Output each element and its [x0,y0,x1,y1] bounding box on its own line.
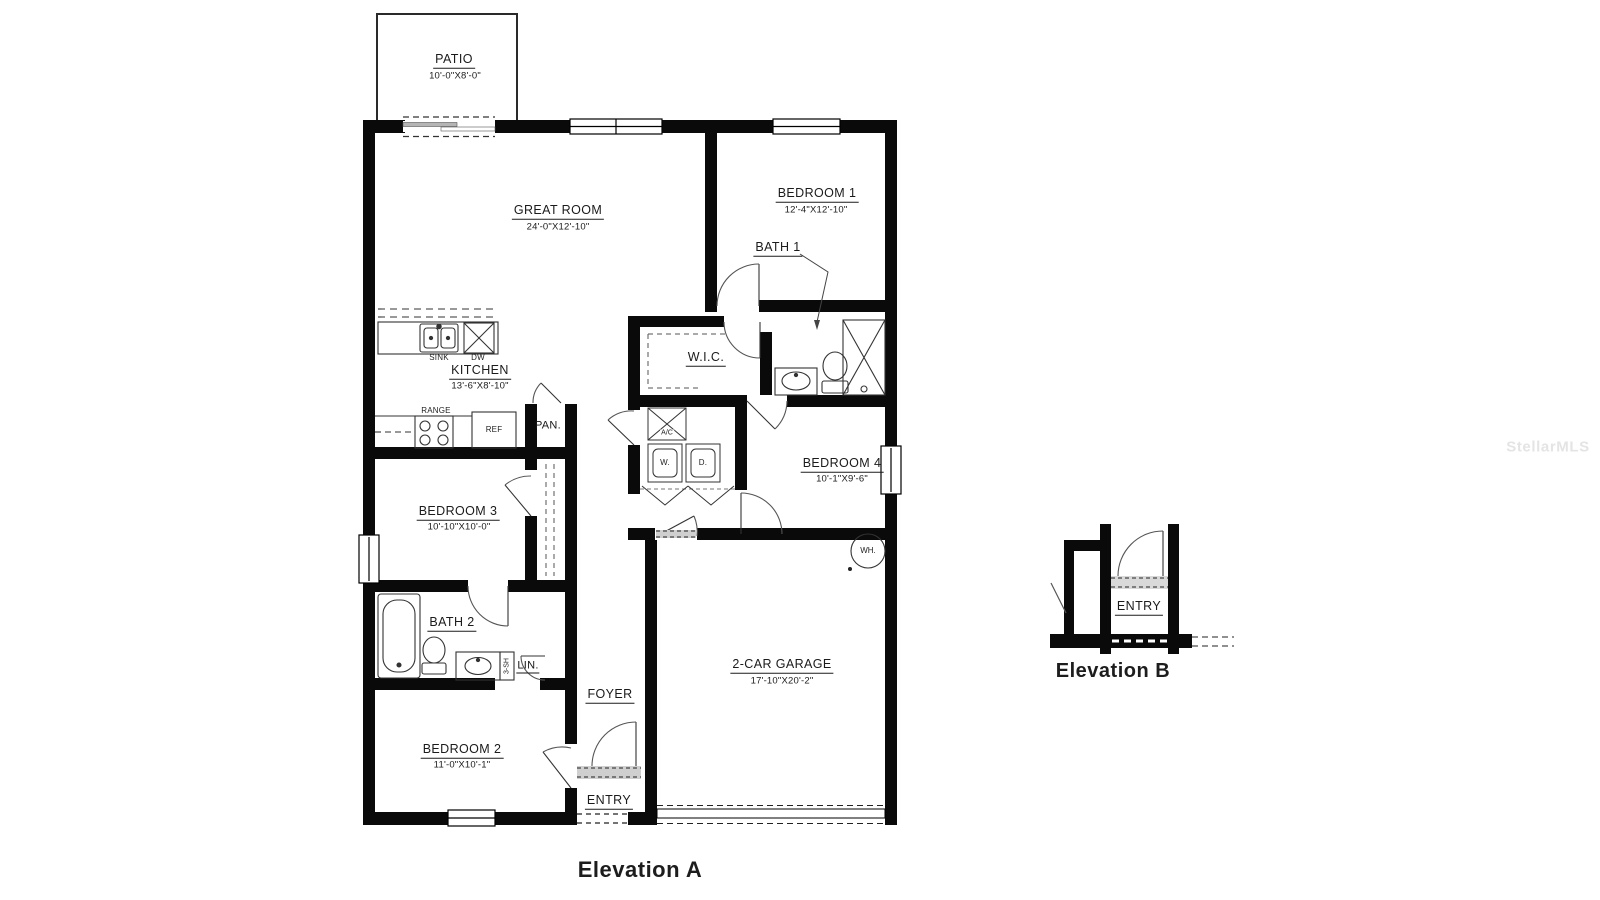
door-front-entry [577,722,641,779]
kitchen-sink-icon [420,324,458,352]
room-label-great-room: GREAT ROOM [512,204,604,217]
fixture-label-ac: A/C [660,430,674,437]
room-label-kitchen: KITCHEN [449,364,511,377]
stellar-mls-watermark: StellarMLS [1506,440,1590,455]
fixture-label-sink: SINK [429,354,448,362]
room-dims-great-room: 24'-0"X12'-10" [527,222,590,232]
room-label-bath1: BATH 1 [753,241,802,254]
elevation-b-title: Elevation B [1056,661,1170,681]
door-pantry [533,383,561,403]
door-bedroom2 [543,747,571,788]
range-icon [415,416,453,448]
bath2-fixtures [378,594,514,680]
elevation-b-detail [1050,524,1234,654]
room-dims-patio: 10'-0"X8'-0" [429,71,481,81]
room-dims-bedroom3: 10'-10"X10'-0" [428,522,491,532]
bath1-leader-line [800,254,828,330]
room-label-entry-b: ENTRY [1115,600,1163,613]
entry-threshold-dashes [577,814,628,823]
room-dims-bedroom2: 11'-0"X10'-1" [434,760,491,770]
door-ac-closet [608,411,634,445]
room-dims-garage: 17'-10"X20'-2" [751,676,814,686]
doors [468,264,787,788]
bifold-doors [640,486,735,505]
window-bedroom2 [448,810,495,826]
floor-plan-page: PATIO 10'-0"X8'-0" GREAT ROOM 24'-0"X12'… [0,0,1600,900]
room-label-bedroom3: BEDROOM 3 [417,505,500,518]
room-label-foyer: FOYER [585,688,634,701]
room-label-bedroom4: BEDROOM 4 [801,457,884,470]
fixture-label-range: RANGE [421,407,450,415]
bath1-toilet-icon [822,352,848,393]
garage-door [657,806,885,824]
dishwasher-icon [464,323,494,353]
sliding-glass-door [403,117,495,137]
room-label-bedroom2: BEDROOM 2 [421,743,504,756]
bath2-vanity-icon [456,652,500,680]
fixture-label-water-heater: WH. [860,547,876,555]
closet-rod-dashes [546,464,554,576]
fixture-label-dryer: D. [699,459,707,467]
door-hall [741,493,782,534]
room-label-patio: PATIO [433,53,475,66]
room-label-wic: W.I.C. [686,351,726,364]
door-wic [724,322,760,358]
floor-plan-drawing [0,0,1600,900]
bath2-toilet-icon [422,637,446,674]
window-bedroom3 [359,535,379,583]
elevation-a-title: Elevation A [578,859,703,881]
door-entry-b [1118,531,1163,576]
room-dims-bedroom1: 12'-4"X12'-10" [785,205,848,215]
fixture-label-washer: W. [660,459,670,467]
bath1-shower-icon [843,320,885,395]
door-bedroom3 [505,476,531,516]
fixture-label-linen: LIN. [516,661,539,672]
room-label-bath2: BATH 2 [427,616,476,629]
fixture-label-ref: REF [486,426,503,434]
fixture-label-dw: DW [471,354,485,362]
window-bedroom1 [773,119,840,134]
room-dims-kitchen: 13'-6"X8'-10" [451,381,508,391]
room-label-entry: ENTRY [585,794,633,807]
room-label-bedroom1: BEDROOM 1 [776,187,859,200]
bath1-vanity-icon [775,368,817,395]
door-bedroom4 [747,401,787,429]
door-bedroom1 [717,264,759,306]
bath1-fixtures [775,254,885,395]
room-dims-bedroom4: 10'-1"X9'-6" [816,474,868,484]
fixture-label-shelves: 3-SH [504,658,511,674]
window-bedroom4 [881,446,901,494]
bathtub-icon [378,594,420,678]
room-label-garage: 2-CAR GARAGE [730,658,833,671]
fixture-label-pantry: PAN. [535,421,561,432]
window-great-room [570,119,662,134]
